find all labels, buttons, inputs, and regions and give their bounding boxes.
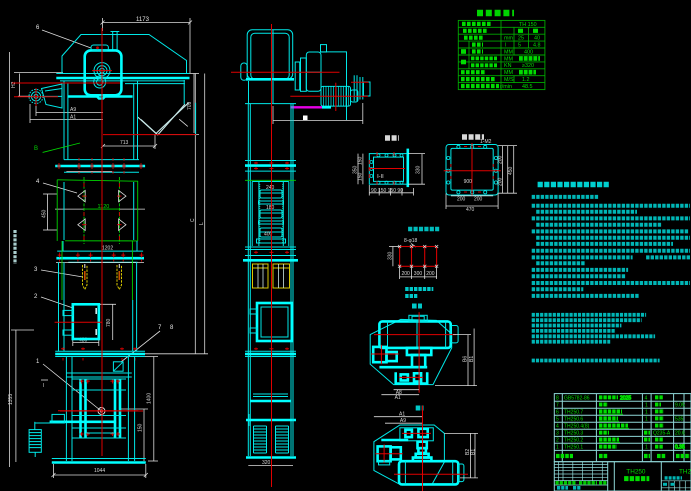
svg-text:B6: B6 — [463, 356, 469, 362]
svg-text:200: 200 — [498, 155, 504, 164]
svg-text:713: 713 — [120, 140, 129, 146]
svg-text:A9: A9 — [400, 418, 406, 424]
svg-text:B: B — [34, 146, 38, 152]
svg-text:M/S: M/S — [504, 77, 514, 83]
svg-text:4: 4 — [645, 395, 648, 401]
svg-text:TH250.4(8): TH250.4(8) — [564, 423, 590, 429]
svg-text:TH 150: TH 150 — [519, 22, 537, 28]
svg-text:B1: B1 — [471, 449, 477, 455]
svg-text:A1: A1 — [70, 115, 76, 121]
svg-text:200: 200 — [402, 271, 411, 277]
svg-text:1: 1 — [556, 445, 559, 451]
svg-text:150: 150 — [358, 156, 364, 165]
svg-text:5: 5 — [556, 416, 559, 422]
svg-text:40: 40 — [534, 36, 540, 42]
svg-text:TH250.7: TH250.7 — [564, 409, 583, 415]
svg-text:900: 900 — [464, 179, 473, 185]
svg-text:C: C — [190, 218, 196, 222]
svg-text:A1: A1 — [399, 412, 405, 418]
svg-text:1.2: 1.2 — [522, 77, 530, 83]
svg-text:450: 450 — [42, 209, 48, 218]
svg-text:A9: A9 — [70, 107, 76, 113]
svg-text:48.5: 48.5 — [522, 84, 533, 90]
svg-text:240: 240 — [266, 185, 275, 191]
svg-text:1400: 1400 — [147, 393, 153, 404]
svg-text:TH250.6: TH250.6 — [564, 416, 583, 422]
svg-text:0.35: 0.35 — [675, 445, 685, 451]
svg-text:1: 1 — [645, 445, 648, 451]
svg-text:350: 350 — [353, 165, 359, 174]
svg-text:L: L — [199, 222, 205, 225]
svg-text:200: 200 — [426, 271, 435, 277]
svg-text:320: 320 — [262, 460, 271, 466]
svg-text:8-φ18: 8-φ18 — [404, 238, 417, 244]
svg-text:535: 535 — [675, 416, 684, 422]
svg-text:GB5782-86: GB5782-86 — [564, 395, 590, 401]
svg-text:400: 400 — [524, 49, 533, 55]
svg-text:5: 5 — [518, 43, 521, 49]
svg-text:2025: 2025 — [620, 395, 631, 401]
svg-text:B1: B1 — [469, 356, 475, 362]
svg-text:300: 300 — [414, 271, 423, 277]
svg-text:4.8: 4.8 — [533, 43, 541, 49]
svg-text:150: 150 — [138, 423, 144, 432]
svg-text:KN: KN — [504, 63, 512, 69]
svg-text:450: 450 — [508, 166, 514, 175]
svg-text:1173: 1173 — [136, 17, 150, 23]
svg-text:TH2: TH2 — [679, 468, 691, 475]
svg-text:MM: MM — [504, 56, 513, 62]
svg-text:A1: A1 — [395, 395, 401, 401]
svg-text:200: 200 — [498, 177, 504, 186]
svg-text:330: 330 — [416, 165, 422, 174]
svg-text:9.05: 9.05 — [675, 402, 685, 408]
svg-text:4: 4 — [556, 423, 559, 429]
svg-text:470: 470 — [466, 207, 475, 213]
svg-text:330: 330 — [388, 251, 394, 260]
svg-text:1: 1 — [645, 409, 648, 415]
svg-text:H2: H2 — [11, 81, 17, 88]
svg-text:MM: MM — [504, 70, 513, 76]
svg-text:I-II: I-II — [377, 174, 384, 180]
svg-text:TH250.3: TH250.3 — [564, 431, 583, 437]
svg-text:1355: 1355 — [8, 394, 14, 405]
svg-text:25: 25 — [518, 36, 524, 42]
svg-text:r/min: r/min — [500, 84, 512, 90]
svg-text:6: 6 — [556, 409, 559, 415]
svg-text:≥320: ≥320 — [522, 63, 534, 69]
svg-text:TH250: TH250 — [626, 468, 646, 475]
svg-text:180: 180 — [266, 205, 275, 211]
svg-text:Q235-A: Q235-A — [653, 431, 671, 437]
svg-text:200: 200 — [474, 197, 483, 203]
svg-text:1044: 1044 — [94, 468, 105, 474]
svg-text:MM: MM — [504, 49, 513, 55]
svg-text:2: 2 — [556, 437, 559, 443]
svg-text:7: 7 — [556, 402, 559, 408]
svg-text:8: 8 — [556, 395, 559, 401]
svg-text:TH250.1: TH250.1 — [564, 445, 583, 451]
svg-text:I: I — [43, 383, 44, 389]
svg-text:mm: mm — [504, 36, 513, 42]
svg-text:TH250.2: TH250.2 — [564, 437, 583, 443]
svg-text:1: 1 — [645, 402, 648, 408]
svg-text:780: 780 — [106, 318, 112, 327]
svg-text:l: l — [505, 43, 506, 49]
svg-text:3: 3 — [556, 431, 559, 437]
svg-text:1: 1 — [645, 416, 648, 422]
svg-text:20.6: 20.6 — [675, 431, 685, 437]
svg-text:90 150 150 90: 90 150 150 90 — [371, 188, 403, 194]
svg-text:200: 200 — [457, 197, 466, 203]
